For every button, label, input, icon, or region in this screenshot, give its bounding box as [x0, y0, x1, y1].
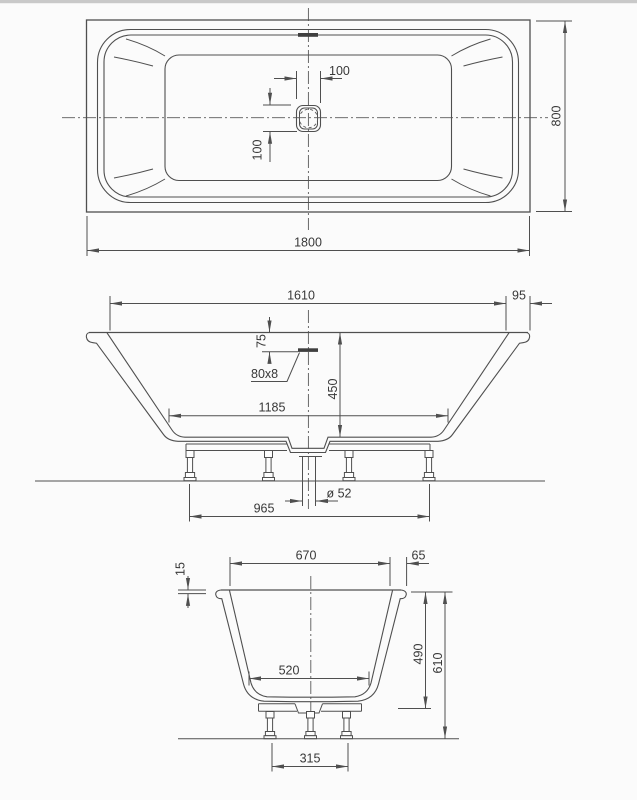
dim-450: 450: [326, 333, 340, 438]
leg: [263, 451, 275, 481]
dim-label-1185: 1185: [259, 401, 286, 415]
end-legs: [264, 712, 353, 739]
dim-label-450: 450: [326, 379, 340, 400]
overflow-slot-section: [298, 348, 318, 352]
label-80x8-leader: 80x8: [251, 353, 300, 382]
dim-520: 520: [249, 664, 369, 686]
dim-965: 965: [190, 484, 430, 522]
leg: [305, 712, 317, 739]
dim-label-15: 15: [174, 562, 188, 576]
dim-o52: ø 52: [285, 487, 352, 502]
dim-label-100-v: 100: [251, 140, 265, 161]
leg: [341, 712, 353, 739]
dim-label-315: 315: [300, 752, 321, 766]
dim-label-610: 610: [431, 653, 445, 674]
drawing-page: 100 100 1800 800: [0, 0, 637, 800]
dim-670: 670: [230, 549, 390, 587]
dim-label-1610: 1610: [287, 289, 315, 303]
dim-label-670: 670: [296, 549, 317, 563]
dim-800: 800: [536, 21, 572, 212]
end-rim-edge: [178, 590, 206, 594]
view-side: 1610 95 75 80x8 450 1185: [35, 289, 552, 522]
dim-490: 490: [398, 592, 453, 709]
dim-610: 610: [431, 592, 445, 739]
dim-315: 315: [272, 743, 348, 772]
view-plan: 100 100 1800 800: [62, 8, 572, 256]
dim-label-100-h: 100: [329, 64, 350, 78]
leg: [264, 712, 276, 739]
bathtub-technical-drawing: 100 100 1800 800: [0, 0, 637, 800]
leg: [423, 451, 435, 481]
dim-drain-100-vertical: 100: [251, 88, 298, 162]
side-legs: [184, 451, 435, 481]
dim-95: 95: [512, 289, 552, 331]
page-top-border: [0, 0, 637, 3]
leg: [184, 451, 196, 481]
dim-label-965: 965: [254, 502, 275, 516]
dim-label-80x8: 80x8: [251, 367, 278, 381]
overflow-slot-mark: [298, 33, 318, 37]
dim-label-o52: ø 52: [327, 487, 352, 501]
dim-label-800: 800: [550, 106, 564, 127]
leg: [343, 451, 355, 481]
dim-label-490: 490: [412, 644, 426, 665]
dim-label-75: 75: [255, 334, 269, 348]
dim-1610: 1610: [110, 289, 506, 331]
dim-label-65: 65: [412, 549, 426, 563]
dim-75: 75: [255, 317, 299, 363]
dim-label-1800: 1800: [294, 236, 322, 250]
dim-drain-100-horizontal: 100: [274, 64, 350, 103]
dim-15: 15: [174, 562, 189, 608]
dim-label-520: 520: [279, 664, 300, 678]
dim-label-95: 95: [512, 289, 526, 303]
dim-65: 65: [407, 549, 429, 587]
view-end: 670 65 15 520 490 610: [174, 549, 460, 772]
